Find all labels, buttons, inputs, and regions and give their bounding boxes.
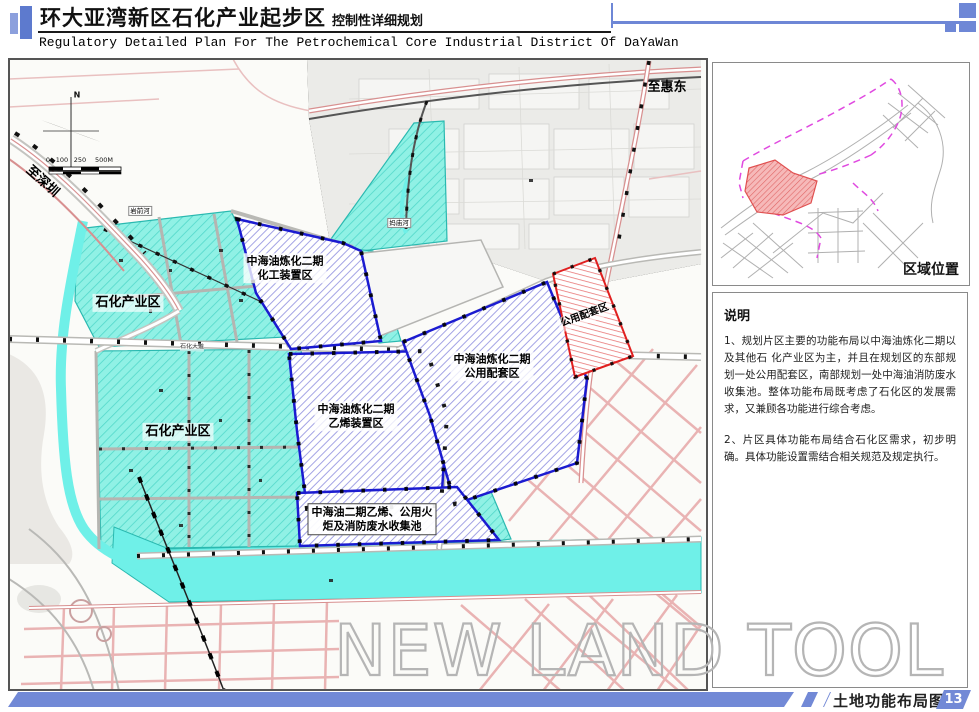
scale-tick-250: 250 <box>74 156 86 164</box>
notes-title: 说明 <box>724 305 956 324</box>
region-label-utility-main-line1: 中海油炼化二期 <box>454 352 531 366</box>
direction-label-huidong: 至惠东 <box>647 80 686 96</box>
header-corner-square-large <box>959 3 976 18</box>
location-map-panel: 区域位置 <box>712 62 970 286</box>
region-label-utility-main-line2: 公用配套区 <box>454 366 531 380</box>
region-label-ethylene: 中海油炼化二期 乙烯装置区 <box>315 401 398 431</box>
region-label-utility-main: 中海油炼化二期 公用配套区 <box>451 351 534 381</box>
region-label-chemical: 中海油炼化二期 化工装置区 <box>244 253 327 283</box>
header-accent-tick <box>611 3 613 28</box>
main-plan-map <box>8 58 708 691</box>
region-label-ethylene-line1: 中海油炼化二期 <box>318 402 395 416</box>
region-label-petro-lower: 石化产业区 <box>142 423 213 441</box>
location-map-canvas <box>713 63 967 281</box>
notes-paragraph-1: 1、规划片区主要的功能布局以中海油炼化二期以及其他石 化产业区为主，并且在规划区… <box>724 333 956 418</box>
region-label-pool: 中海油二期乙烯、公用火 炬及消防废水收集池 <box>308 503 437 535</box>
region-label-pool-line1: 中海油二期乙烯、公用火 <box>312 505 433 519</box>
page-title-suffix: 控制性详细规划 <box>332 14 423 29</box>
footer-doc-label: 土地功能布局图 <box>833 690 945 711</box>
footer-accent-bar <box>8 692 794 707</box>
footer-page-number: 13 <box>944 692 962 707</box>
scale-bar <box>49 167 121 174</box>
header-corner-square-small <box>945 21 956 32</box>
region-label-chemical-line2: 化工装置区 <box>247 268 324 282</box>
scale-tick-100: 100 <box>56 156 68 164</box>
header-rule-line <box>38 31 611 33</box>
river-label-mamiao: 妈庙河 <box>387 218 411 228</box>
region-label-pool-line2: 炬及消防废水收集池 <box>312 519 433 533</box>
compass-north-label: N <box>74 91 81 100</box>
footer-accent-slash-1 <box>801 692 818 707</box>
header-accent-line <box>611 21 971 24</box>
header-logo-bar-dark <box>20 6 32 39</box>
page-title: 环大亚湾新区石化产业起步区 <box>40 6 326 30</box>
region-label-ethylene-line2: 乙烯装置区 <box>318 416 395 430</box>
scale-tick-500: 500M <box>95 156 113 164</box>
road-label-main-artery: 石化大道 <box>180 343 204 351</box>
notes-paragraph-2: 2、片区具体功能布局结合石化区需求，初步明确。具体功能设置需结合相关规范及规定执… <box>724 432 956 466</box>
region-label-petro-upper: 石化产业区 <box>92 294 163 312</box>
header-corner-square-medium <box>959 21 976 32</box>
footer-accent-slash-2 <box>823 692 831 707</box>
page-subtitle-en: Regulatory Detailed Plan For The Petroch… <box>39 35 679 50</box>
watermark-text: NEW LAND TOOL <box>334 610 944 692</box>
plan-sheet: 环大亚湾新区石化产业起步区控制性详细规划 Regulatory Detailed… <box>0 0 979 712</box>
header-logo-bar-light <box>10 13 18 34</box>
river-label-yanqian: 岩前河 <box>128 206 152 216</box>
map-canvas <box>9 59 707 690</box>
region-label-chemical-line1: 中海油炼化二期 <box>247 254 324 268</box>
page-title-row: 环大亚湾新区石化产业起步区控制性详细规划 <box>40 2 423 32</box>
location-map-title: 区域位置 <box>903 259 959 279</box>
scale-tick-0: 0 <box>46 156 50 164</box>
